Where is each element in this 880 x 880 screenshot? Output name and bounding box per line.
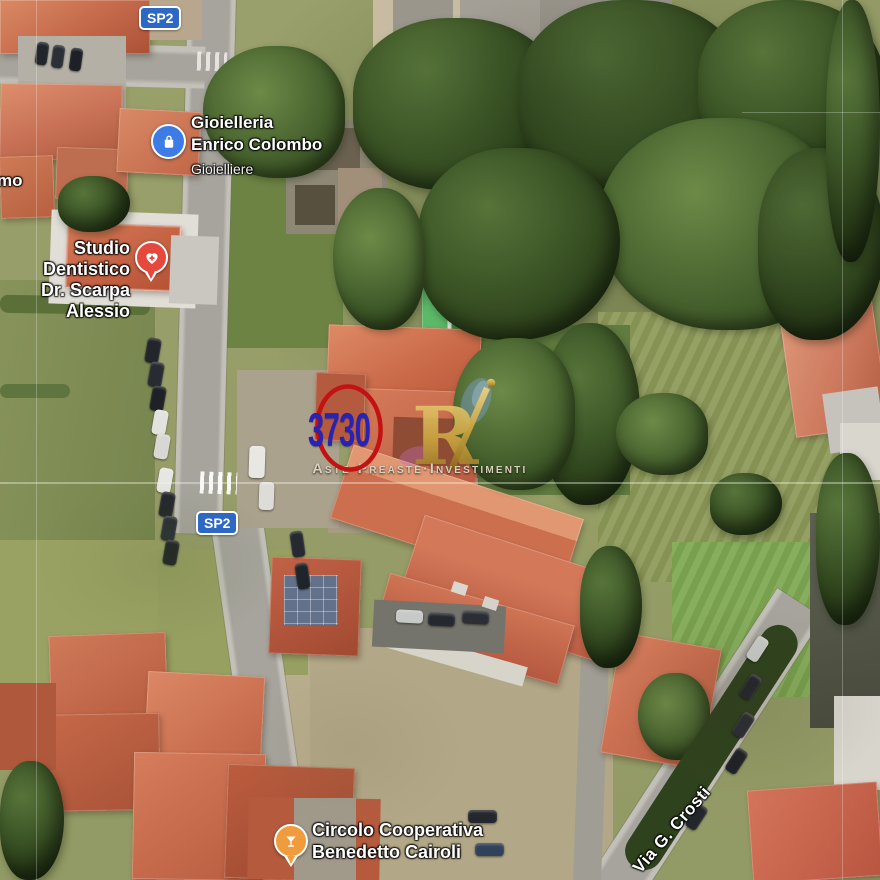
building <box>169 235 219 305</box>
street-label-truncated: mo <box>0 171 23 191</box>
parcel-number: 3730 <box>308 406 370 453</box>
trees <box>333 188 425 330</box>
shopping-bag-icon <box>159 132 179 152</box>
grid-line-vertical <box>842 0 843 880</box>
grid-line-vertical <box>36 0 37 880</box>
white-building <box>834 696 880 790</box>
car <box>153 433 171 460</box>
building-roof <box>0 683 56 770</box>
satellite-map: R Aste·Preaste·Investimenti 3730 SP2 SP2… <box>0 0 880 880</box>
poi-name-line: Benedetto Cairoli <box>312 841 483 863</box>
ruined-building <box>295 185 335 225</box>
van <box>248 446 265 479</box>
grid-line-horizontal <box>742 112 880 113</box>
pin-tail <box>287 856 295 864</box>
hedge-row <box>0 384 70 398</box>
car <box>428 612 456 626</box>
poi-name-line: Dr. Scarpa Alessio <box>0 280 130 322</box>
car <box>151 409 169 436</box>
trees <box>0 761 64 880</box>
car <box>158 491 176 518</box>
pin-tail <box>147 271 155 279</box>
car <box>396 609 424 623</box>
building-roof <box>747 782 880 880</box>
car <box>462 610 490 624</box>
poi-label-gioielleria[interactable]: Gioielleria Enrico Colombo Gioielliere <box>191 112 322 180</box>
cocktail-glass-icon <box>281 831 301 851</box>
car <box>289 530 305 558</box>
watermark-dot <box>487 379 496 388</box>
poi-name-line: Enrico Colombo <box>191 134 322 156</box>
solar-panels <box>284 575 338 625</box>
car <box>144 337 162 364</box>
poi-pin-circolo[interactable] <box>274 824 308 858</box>
car <box>259 482 275 511</box>
road-badge-sp2: SP2 <box>139 6 181 30</box>
watermark-rule-line <box>0 482 880 484</box>
poi-name-line: Studio Dentistico <box>0 238 130 280</box>
heart-cross-icon <box>142 248 162 268</box>
poi-pin-gioielleria[interactable] <box>151 124 186 159</box>
trees <box>418 148 620 340</box>
poi-label-circolo[interactable]: Circolo Cooperativa Benedetto Cairoli <box>312 819 483 863</box>
road-badge-sp2: SP2 <box>196 511 238 535</box>
poi-name-line: Circolo Cooperativa <box>312 819 483 841</box>
poi-category: Gioielliere <box>191 158 322 180</box>
building-roof <box>144 671 265 764</box>
poi-pin-studio-dentistico[interactable] <box>135 241 168 274</box>
poi-label-studio-dentistico[interactable]: Studio Dentistico Dr. Scarpa Alessio <box>0 238 130 322</box>
car <box>149 385 167 412</box>
car <box>156 467 174 494</box>
poi-name-line: Gioielleria <box>191 112 322 134</box>
grass <box>0 280 155 575</box>
trees <box>616 393 708 475</box>
car <box>147 361 165 388</box>
car <box>160 515 178 542</box>
